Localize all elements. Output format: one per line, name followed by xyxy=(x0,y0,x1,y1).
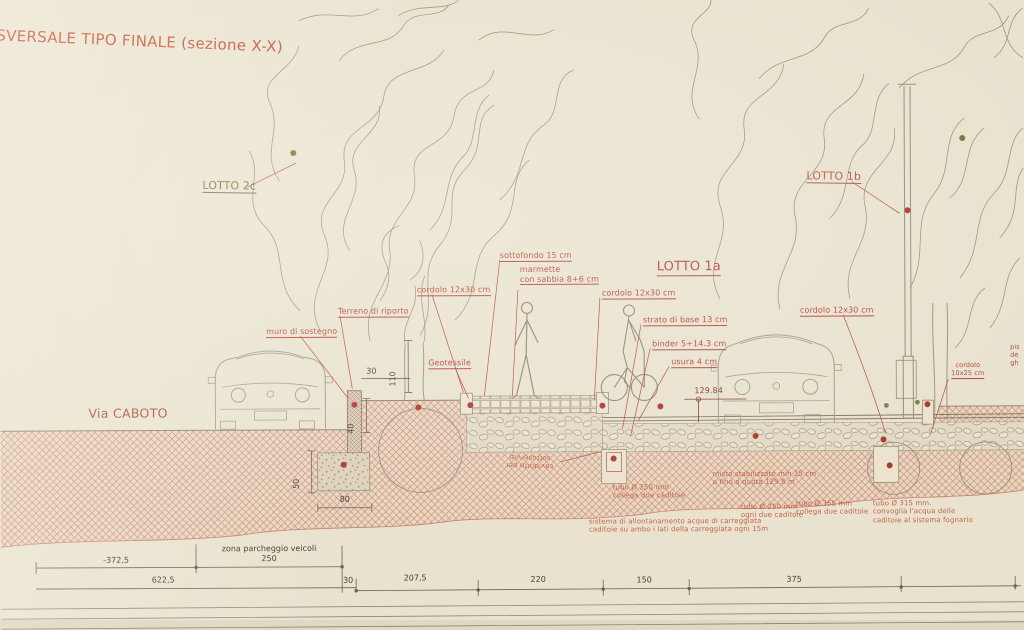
dim-30: 30 xyxy=(343,576,353,586)
stone-base-under-sidewalk xyxy=(466,413,602,453)
label-cavidotto: cavidotto per sottoservizi xyxy=(505,452,553,470)
label-lotto-2c: LOTTO 2c xyxy=(202,179,256,194)
dim-v30: 30 xyxy=(366,367,376,377)
catch-basin-right xyxy=(874,446,899,482)
dim-622-5: 622,5 xyxy=(152,575,175,585)
dim-220: 220 xyxy=(530,575,545,585)
label-edge-note: pis de gh xyxy=(1010,344,1020,367)
label-tubo-315: tubo Ø 315 mm. convoglia l'acqua delle c… xyxy=(873,499,973,525)
car-right xyxy=(711,335,841,424)
dim-150: 150 xyxy=(636,575,651,585)
label-tubo-250-collega: tubo Ø 250 mm collega due caditoie xyxy=(613,483,686,500)
label-sistema-allontanamento: sistema di allontanamento acque di carre… xyxy=(589,517,768,535)
label-quota-12984: 129.84 xyxy=(694,386,723,396)
label-marmette: marmette con sabbia 8+6 cm xyxy=(520,265,599,286)
paving-blocks xyxy=(466,396,602,414)
dim-40: 40 xyxy=(346,423,356,433)
photo-of-technical-drawing: SVERSALE TIPO FINALE (sezione X-X) LOTTO… xyxy=(0,0,1024,630)
pedestrian xyxy=(512,302,538,398)
dim-207-5: 207,5 xyxy=(404,573,427,583)
dim-zona-parcheggio: zona parcheggio veicoli 250 xyxy=(222,544,317,564)
wall-foundation xyxy=(318,453,370,491)
dim-neg-372-5: -372,5 xyxy=(103,556,129,566)
level-marker xyxy=(684,397,746,422)
label-geotessile: Geotessile xyxy=(428,358,471,369)
label-lotto-1b: LOTTO 1b xyxy=(806,169,861,184)
label-via-caboto: Via CABOTO xyxy=(88,406,167,421)
drawing-sheet: SVERSALE TIPO FINALE (sezione X-X) LOTTO… xyxy=(0,0,1024,630)
label-terreno-riporto: Terreno di riporto xyxy=(338,306,409,317)
dim-110: 110 xyxy=(388,371,398,386)
street-light-pole xyxy=(895,84,917,418)
stone-base-under-road xyxy=(602,422,1024,452)
dim-375: 375 xyxy=(786,575,801,585)
label-strato-base: strato di base 13 cm xyxy=(643,315,727,326)
catch-basin-left xyxy=(602,450,627,484)
label-cordolo-right: cordolo 12x30 cm xyxy=(800,305,874,316)
tree-right xyxy=(691,0,1024,419)
label-binder: binder 5÷14.3 cm xyxy=(652,339,726,350)
label-usura: usura 4 cm xyxy=(671,357,717,368)
label-lotto-1a: LOTTO 1a xyxy=(657,259,721,276)
label-cordolo-10x25: cordolo 10x25 cm xyxy=(951,362,984,379)
verge-right xyxy=(938,406,1024,424)
label-cordolo-center: cordolo 12x30 cm xyxy=(602,288,676,299)
label-sottofondo: sottofondo 15 cm xyxy=(500,251,572,262)
label-tubo-355: tubo Ø 355 mm collega due caditoie xyxy=(796,499,869,516)
dim-80: 80 xyxy=(340,495,350,505)
label-misto-stabilizzato: misto stabilizzato min 25 cm o fino a qu… xyxy=(713,470,817,487)
label-cordolo-left: cordolo 12x30 cm xyxy=(417,285,491,296)
car-left xyxy=(208,351,332,430)
dim-50: 50 xyxy=(292,479,302,489)
label-muro-sostegno: muro di sostegno xyxy=(266,327,337,338)
